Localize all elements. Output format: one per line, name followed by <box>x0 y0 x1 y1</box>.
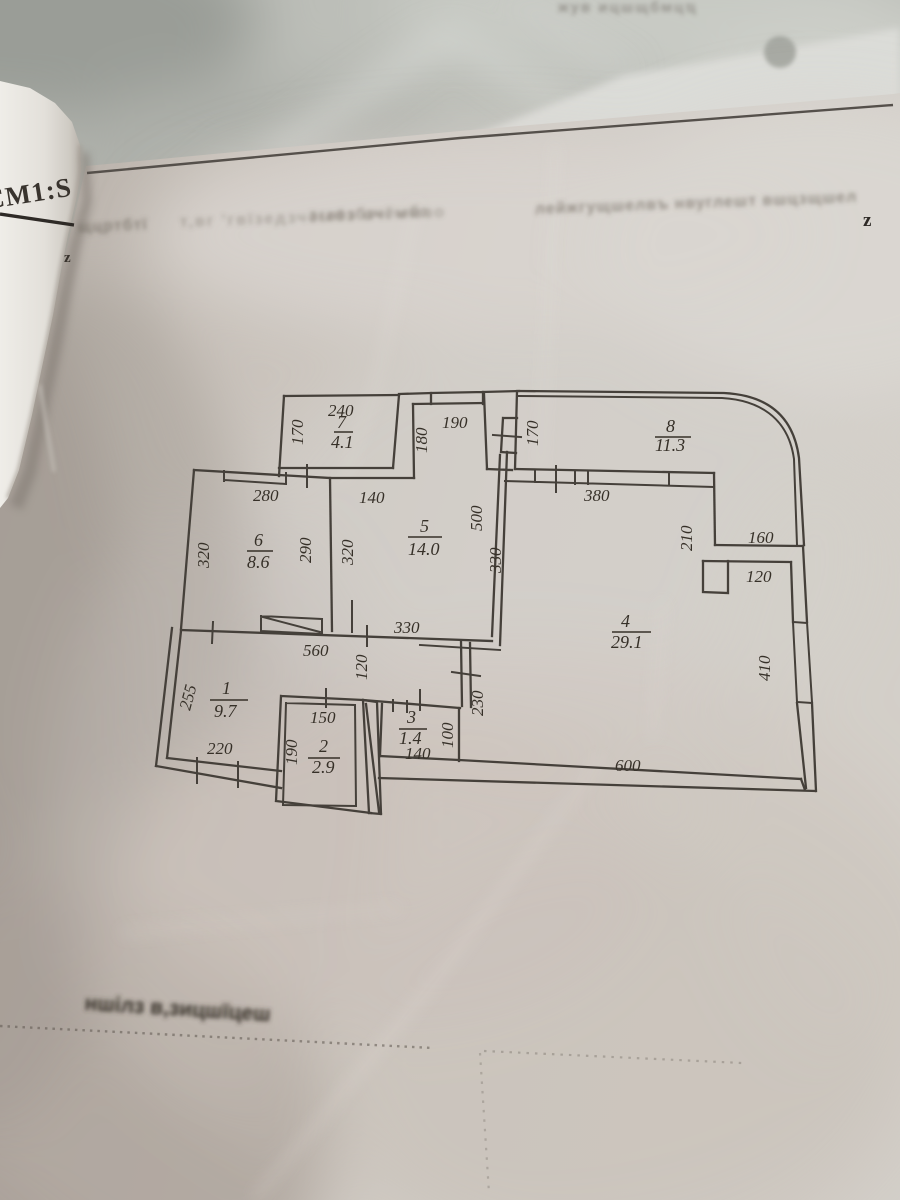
svg-text:560: 560 <box>303 641 329 660</box>
svg-text:жув ицшщбмцҵ: жув ицшщбмцҵ <box>557 0 698 16</box>
svg-text:150: 150 <box>310 708 336 727</box>
svg-text:щцртбтї: щцртбтї <box>78 216 149 236</box>
svg-text:190: 190 <box>282 739 301 765</box>
svg-text:8.6: 8.6 <box>247 552 270 572</box>
svg-text:4: 4 <box>621 611 630 631</box>
svg-text:160: 160 <box>748 528 774 547</box>
svg-text:170: 170 <box>523 420 542 446</box>
svg-text:320: 320 <box>194 542 213 569</box>
svg-text:220: 220 <box>207 739 233 758</box>
svg-text:280: 280 <box>253 486 279 505</box>
svg-text:320: 320 <box>338 539 357 566</box>
svg-text:120: 120 <box>352 654 371 680</box>
svg-text:230: 230 <box>468 690 487 716</box>
svg-text:290: 290 <box>296 537 315 563</box>
svg-text:9.7: 9.7 <box>214 701 238 721</box>
svg-text:6: 6 <box>254 530 263 550</box>
svg-text:14.0: 14.0 <box>408 539 440 559</box>
svg-text:3: 3 <box>406 707 416 727</box>
svg-text:2.9: 2.9 <box>312 757 335 777</box>
svg-text:z: z <box>64 250 71 266</box>
svg-text:2: 2 <box>319 736 328 756</box>
svg-text:7: 7 <box>337 412 347 432</box>
svg-text:380: 380 <box>583 486 610 505</box>
svg-text:4.1: 4.1 <box>331 432 354 452</box>
svg-text:170: 170 <box>288 419 307 445</box>
svg-text:29.1: 29.1 <box>611 632 643 652</box>
svg-text:1: 1 <box>222 678 231 698</box>
svg-text:330: 330 <box>393 618 420 637</box>
svg-text:5: 5 <box>420 516 429 536</box>
svg-text:11.3: 11.3 <box>655 435 685 455</box>
svg-text:100: 100 <box>438 722 457 748</box>
svg-text:140: 140 <box>359 488 385 507</box>
svg-text:410: 410 <box>755 655 774 681</box>
svg-text:190: 190 <box>442 413 468 432</box>
svg-text:180: 180 <box>412 427 431 453</box>
svg-text:330: 330 <box>486 547 505 574</box>
svg-text:140: 140 <box>405 744 431 763</box>
svg-text:600: 600 <box>615 756 641 775</box>
svg-text:8: 8 <box>666 416 675 436</box>
svg-text:120: 120 <box>746 567 772 586</box>
svg-text:210: 210 <box>677 525 696 551</box>
svg-text:z: z <box>863 210 872 231</box>
svg-text:500: 500 <box>467 505 486 531</box>
